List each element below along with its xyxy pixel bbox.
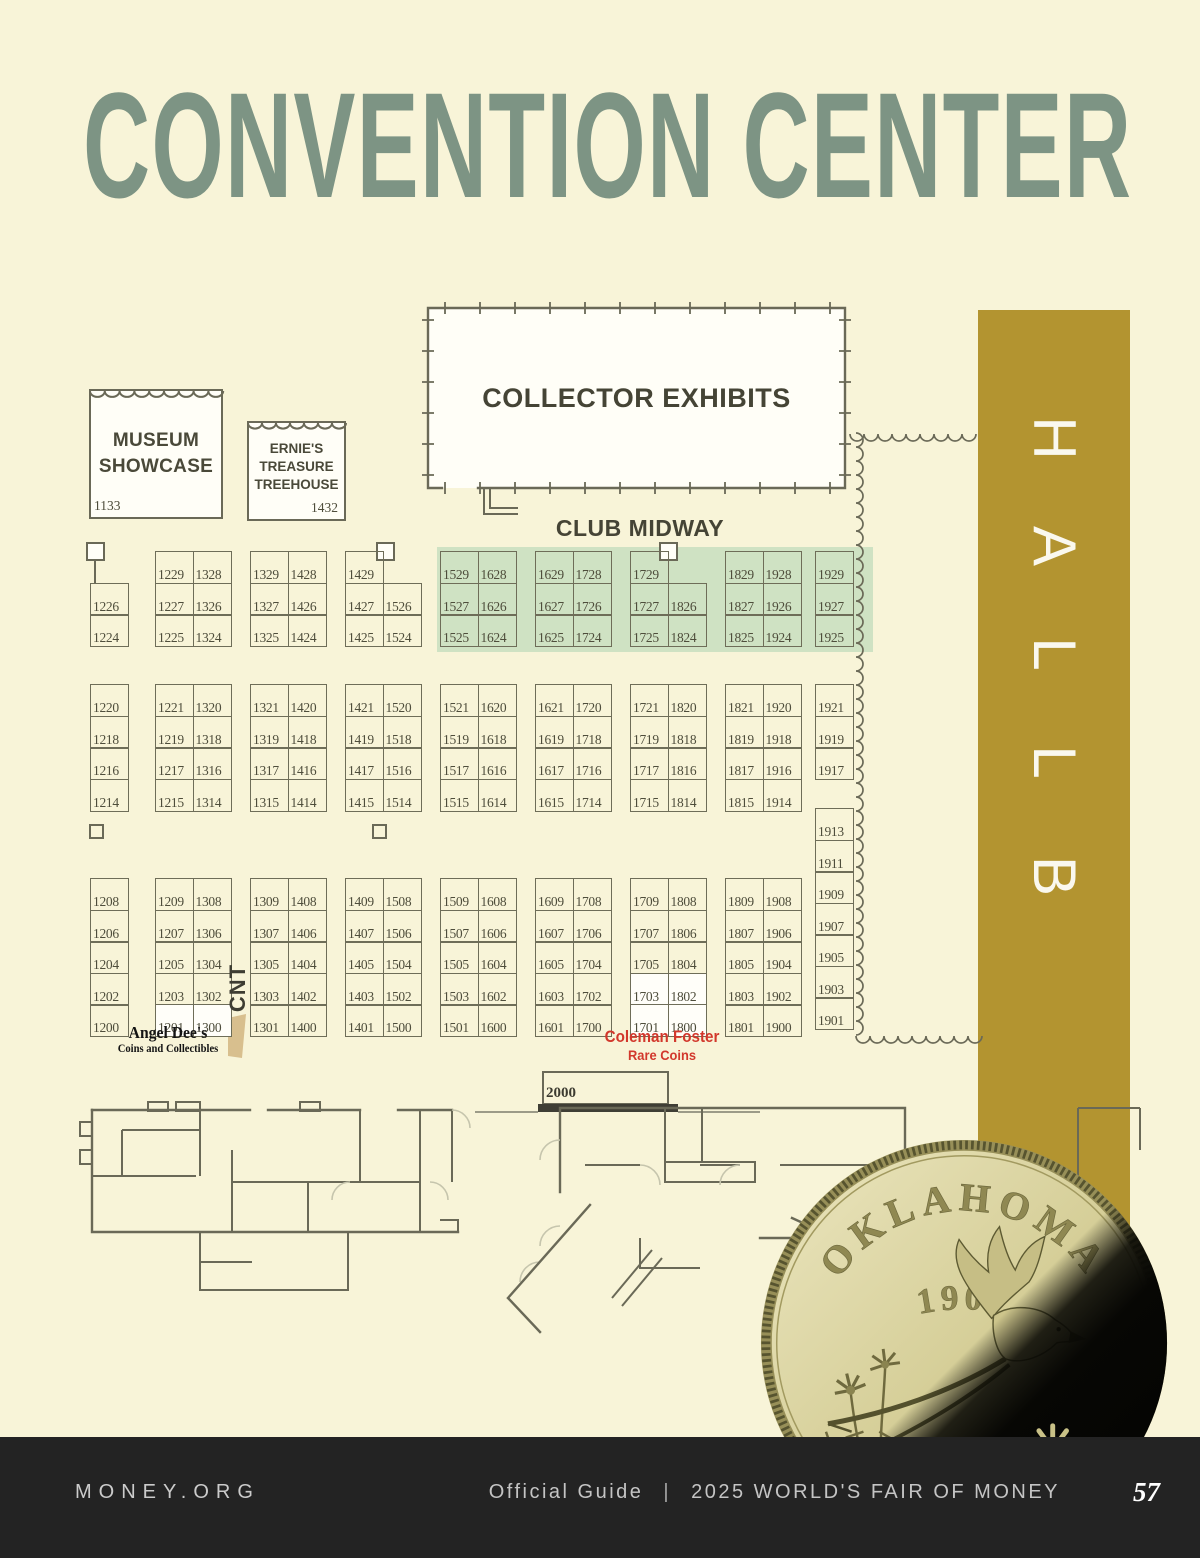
- booth-number: 1220: [93, 700, 119, 716]
- booth-1415: 1415: [345, 779, 384, 812]
- booth-number: 1408: [291, 894, 317, 910]
- page-title: CONVENTION CENTER: [83, 70, 1132, 220]
- booth-number: 1814: [671, 795, 697, 811]
- booth-number: 1917: [818, 763, 844, 779]
- booth-number: 1925: [818, 630, 844, 646]
- booth-number: 1325: [253, 630, 279, 646]
- booth-1702: 1702: [573, 973, 612, 1006]
- booth-1315: 1315: [250, 779, 289, 812]
- booth-1720: 1720: [573, 684, 612, 717]
- booth-number: 1707: [633, 926, 659, 942]
- booth-1603: 1603: [535, 973, 574, 1006]
- booth-1803: 1803: [725, 973, 764, 1006]
- booth-number: 1217: [158, 763, 184, 779]
- angel-dees-name: Angel Dee's: [104, 1024, 233, 1043]
- booth-number: 1215: [158, 795, 184, 811]
- booth-1508: 1508: [383, 878, 422, 911]
- booth-1808: 1808: [668, 878, 707, 911]
- booth-1214: 1214: [90, 779, 129, 812]
- booth-number: 1606: [481, 926, 507, 942]
- booth-number: 1419: [348, 732, 374, 748]
- booth-number: 1320: [196, 700, 222, 716]
- booth-1416: 1416: [288, 747, 327, 780]
- booth-1432-tag: 1432: [248, 500, 338, 516]
- booth-1829: 1829: [725, 551, 764, 584]
- booth-number: 1816: [671, 763, 697, 779]
- booth-number: 1204: [93, 957, 119, 973]
- booth-1820: 1820: [668, 684, 707, 717]
- booth-1913: 1913: [815, 808, 854, 841]
- museum-showcase-label: MUSEUM SHOWCASE: [90, 428, 222, 479]
- coleman-foster-name: Coleman Foster: [598, 1028, 727, 1047]
- booth-number: 1308: [196, 894, 222, 910]
- booth-1802: 1802: [668, 973, 707, 1006]
- booth-1721: 1721: [630, 684, 669, 717]
- booth-1205: 1205: [155, 941, 194, 974]
- booth-number: 1424: [291, 630, 317, 646]
- booth-number: 1203: [158, 989, 184, 1005]
- booth-number: 1718: [576, 732, 602, 748]
- booth-1921: 1921: [815, 684, 854, 717]
- booth-number: 1515: [443, 795, 469, 811]
- footer-guide-label: Official Guide: [489, 1481, 644, 1503]
- booth-1911: 1911: [815, 840, 854, 873]
- booth-1521: 1521: [440, 684, 479, 717]
- booth-1428: 1428: [288, 551, 327, 584]
- booth-number: 1821: [728, 700, 754, 716]
- booth-number: 1926: [766, 599, 792, 615]
- booth-1203: 1203: [155, 973, 194, 1006]
- booth-number: 1306: [196, 926, 222, 942]
- booth-1518: 1518: [383, 716, 422, 749]
- booth-number: 1909: [818, 887, 844, 903]
- booth-1306: 1306: [193, 910, 232, 943]
- booth-1724: 1724: [573, 614, 612, 647]
- booth-number: 1827: [728, 599, 754, 615]
- booth-1408: 1408: [288, 878, 327, 911]
- collector-exhibits-label: COLLECTOR EXHIBITS: [428, 383, 845, 414]
- booth-number: 1625: [538, 630, 564, 646]
- booth-1506: 1506: [383, 910, 422, 943]
- booth-1404: 1404: [288, 941, 327, 974]
- booth-number: 1714: [576, 795, 602, 811]
- booth-number: 1802: [671, 989, 697, 1005]
- booth-1215: 1215: [155, 779, 194, 812]
- booth-number: 1521: [443, 700, 469, 716]
- booth-1617: 1617: [535, 747, 574, 780]
- booth-number: 1804: [671, 957, 697, 973]
- booth-number: 1921: [818, 700, 844, 716]
- booth-1309: 1309: [250, 878, 289, 911]
- booth-number: 1503: [443, 989, 469, 1005]
- booth-number: 1509: [443, 894, 469, 910]
- booth-number: 1214: [93, 795, 119, 811]
- booth-1520: 1520: [383, 684, 422, 717]
- booth-number: 1803: [728, 989, 754, 1005]
- booth-1607: 1607: [535, 910, 574, 943]
- booth-number: 1720: [576, 700, 602, 716]
- booth-number: 1819: [728, 732, 754, 748]
- booth-number: 1219: [158, 732, 184, 748]
- booth-number: 1502: [386, 989, 412, 1005]
- booth-number: 1409: [348, 894, 374, 910]
- booth-1821: 1821: [725, 684, 764, 717]
- booth-1418: 1418: [288, 716, 327, 749]
- booth-number: 1427: [348, 599, 374, 615]
- booth-1517: 1517: [440, 747, 479, 780]
- booth-1905: 1905: [815, 934, 854, 967]
- booth-1704: 1704: [573, 941, 612, 974]
- booth-number: 1328: [196, 567, 222, 583]
- booth-number: 1907: [818, 919, 844, 935]
- booth-1324: 1324: [193, 614, 232, 647]
- booth-number: 1614: [481, 795, 507, 811]
- booth-number: 1604: [481, 957, 507, 973]
- booth-number: 1708: [576, 894, 602, 910]
- booth-1401: 1401: [345, 1004, 384, 1037]
- booth-number: 1628: [481, 567, 507, 583]
- booth-1429: 1429: [345, 551, 384, 584]
- booth-1628: 1628: [478, 551, 517, 584]
- booth-number: 1428: [291, 567, 317, 583]
- booth-1317: 1317: [250, 747, 289, 780]
- booth-number: 1207: [158, 926, 184, 942]
- booth-1703: 1703: [630, 973, 669, 1006]
- booth-1920: 1920: [763, 684, 802, 717]
- booth-1514: 1514: [383, 779, 422, 812]
- booth-1602: 1602: [478, 973, 517, 1006]
- booth-number: 1703: [633, 989, 659, 1005]
- page-footer: MONEY.ORG Official Guide|2025 WORLD'S FA…: [0, 1437, 1200, 1558]
- booth-number: 1807: [728, 926, 754, 942]
- booth-1804: 1804: [668, 941, 707, 974]
- booth-1816: 1816: [668, 747, 707, 780]
- booth-1500: 1500: [383, 1004, 422, 1037]
- booth-number: 1705: [633, 957, 659, 973]
- booth-number: 1900: [766, 1020, 792, 1036]
- angel-dees-subtitle: Coins and Collectibles: [104, 1043, 233, 1055]
- booth-number: 1202: [93, 989, 119, 1005]
- booth-number: 1519: [443, 732, 469, 748]
- booth-1206: 1206: [90, 910, 129, 943]
- booth-number: 1327: [253, 599, 279, 615]
- booth-1605: 1605: [535, 941, 574, 974]
- booth-number: 1727: [633, 599, 659, 615]
- booth-number: 1824: [671, 630, 697, 646]
- booth-1209: 1209: [155, 878, 194, 911]
- booth-1716: 1716: [573, 747, 612, 780]
- booth-1904: 1904: [763, 941, 802, 974]
- booth-2000-tag: 2000: [546, 1085, 576, 1102]
- booth-1502: 1502: [383, 973, 422, 1006]
- booth-number: 1928: [766, 567, 792, 583]
- booth-number: 1406: [291, 926, 317, 942]
- booth-1909: 1909: [815, 871, 854, 904]
- booth-1901: 1901: [815, 997, 854, 1030]
- booth-1426: 1426: [288, 583, 327, 616]
- booth-1925: 1925: [815, 614, 854, 647]
- booth-number: 1417: [348, 763, 374, 779]
- booth-number: 1725: [633, 630, 659, 646]
- booth-number: 1806: [671, 926, 697, 942]
- booth-1219: 1219: [155, 716, 194, 749]
- booth-1226: 1226: [90, 583, 129, 616]
- booth-number: 1506: [386, 926, 412, 942]
- guide-page: { "page": { "title": "CONVENTION CENTER"…: [0, 0, 1200, 1558]
- booth-1507: 1507: [440, 910, 479, 943]
- booth-number: 1728: [576, 567, 602, 583]
- booth-1907: 1907: [815, 903, 854, 936]
- booth-1625: 1625: [535, 614, 574, 647]
- booth-1208: 1208: [90, 878, 129, 911]
- booth-1207: 1207: [155, 910, 194, 943]
- booth-1727: 1727: [630, 583, 669, 616]
- booth-1709: 1709: [630, 878, 669, 911]
- booth-number: 1529: [443, 567, 469, 583]
- booth-1202: 1202: [90, 973, 129, 1006]
- booth-1420: 1420: [288, 684, 327, 717]
- booth-number: 1721: [633, 700, 659, 716]
- booth-number: 1908: [766, 894, 792, 910]
- booth-number: 1817: [728, 763, 754, 779]
- booth-number: 1704: [576, 957, 602, 973]
- booth-1621: 1621: [535, 684, 574, 717]
- booth-number: 1924: [766, 630, 792, 646]
- booth-number: 1829: [728, 567, 754, 583]
- cnt-label: CNT: [212, 962, 264, 1014]
- booth-1414: 1414: [288, 779, 327, 812]
- booth-number: 1420: [291, 700, 317, 716]
- booth-number: 1514: [386, 795, 412, 811]
- footer-guide-text: Official Guide|2025 WORLD'S FAIR OF MONE…: [489, 1481, 1060, 1504]
- booth-1826: 1826: [668, 583, 707, 616]
- booth-number: 1809: [728, 894, 754, 910]
- booth-1403: 1403: [345, 973, 384, 1006]
- booth-number: 1326: [196, 599, 222, 615]
- booth-number: 1415: [348, 795, 374, 811]
- booth-1827: 1827: [725, 583, 764, 616]
- footer-page-number: 57: [1133, 1477, 1160, 1508]
- booth-number: 1500: [386, 1020, 412, 1036]
- booth-1715: 1715: [630, 779, 669, 812]
- booth-1600: 1600: [478, 1004, 517, 1037]
- booth-1809: 1809: [725, 878, 764, 911]
- booth-number: 1309: [253, 894, 279, 910]
- booth-number: 1400: [291, 1020, 317, 1036]
- booth-1624: 1624: [478, 614, 517, 647]
- booth-number: 1216: [93, 763, 119, 779]
- booth-number: 1716: [576, 763, 602, 779]
- booth-number: 1601: [538, 1020, 564, 1036]
- booth-number: 1911: [818, 856, 843, 872]
- booth-1325: 1325: [250, 614, 289, 647]
- booth-number: 1600: [481, 1020, 507, 1036]
- booth-1319: 1319: [250, 716, 289, 749]
- booth-number: 1617: [538, 763, 564, 779]
- booth-1725: 1725: [630, 614, 669, 647]
- booth-1224: 1224: [90, 614, 129, 647]
- booth-number: 1401: [348, 1020, 374, 1036]
- booth-number: 1918: [766, 732, 792, 748]
- booth-number: 1218: [93, 732, 119, 748]
- booth-1806: 1806: [668, 910, 707, 943]
- booth-number: 1608: [481, 894, 507, 910]
- booth-1427: 1427: [345, 583, 384, 616]
- booth-1516: 1516: [383, 747, 422, 780]
- booth-number: 1724: [576, 630, 602, 646]
- booth-number: 1520: [386, 700, 412, 716]
- booth-number: 1914: [766, 795, 792, 811]
- booth-1505: 1505: [440, 941, 479, 974]
- booth-1307: 1307: [250, 910, 289, 943]
- booth-number: 1618: [481, 732, 507, 748]
- booth-1906: 1906: [763, 910, 802, 943]
- booth-1819: 1819: [725, 716, 764, 749]
- booth-number: 1527: [443, 599, 469, 615]
- booth-number: 1517: [443, 763, 469, 779]
- booth-number: 1801: [728, 1020, 754, 1036]
- booth-number: 1317: [253, 763, 279, 779]
- booth-1718: 1718: [573, 716, 612, 749]
- booth-1719: 1719: [630, 716, 669, 749]
- booth-number: 1602: [481, 989, 507, 1005]
- booth-number: 1906: [766, 926, 792, 942]
- booth-1619: 1619: [535, 716, 574, 749]
- booth-number: 1314: [196, 795, 222, 811]
- booth-number: 1227: [158, 599, 184, 615]
- booth-number: 1425: [348, 630, 374, 646]
- booth-number: 1508: [386, 894, 412, 910]
- booth-1929: 1929: [815, 551, 854, 584]
- booth-number: 1229: [158, 567, 184, 583]
- booth-1515: 1515: [440, 779, 479, 812]
- booth-1616: 1616: [478, 747, 517, 780]
- booth-1817: 1817: [725, 747, 764, 780]
- booth-1328: 1328: [193, 551, 232, 584]
- booth-1526: 1526: [383, 583, 422, 616]
- booth-1329: 1329: [250, 551, 289, 584]
- booth-number: 1815: [728, 795, 754, 811]
- booth-1321: 1321: [250, 684, 289, 717]
- booth-1918: 1918: [763, 716, 802, 749]
- booth-number: 1609: [538, 894, 564, 910]
- booth-number: 1403: [348, 989, 374, 1005]
- booth-number: 1616: [481, 763, 507, 779]
- booth-number: 1615: [538, 795, 564, 811]
- booth-number: 1318: [196, 732, 222, 748]
- booth-1204: 1204: [90, 941, 129, 974]
- booth-1620: 1620: [478, 684, 517, 717]
- booth-1604: 1604: [478, 941, 517, 974]
- booth-number: 1603: [538, 989, 564, 1005]
- booth-number: 1903: [818, 982, 844, 998]
- booth-number: 1208: [93, 894, 119, 910]
- coleman-foster-label: Coleman Foster Rare Coins: [598, 1028, 727, 1063]
- booth-number: 1927: [818, 599, 844, 615]
- booth-1425: 1425: [345, 614, 384, 647]
- booth-1402: 1402: [288, 973, 327, 1006]
- booth-number: 1402: [291, 989, 317, 1005]
- booth-number: 1324: [196, 630, 222, 646]
- booth-number: 1726: [576, 599, 602, 615]
- booth-number: 1719: [633, 732, 659, 748]
- booth-number: 1820: [671, 700, 697, 716]
- booth-number: 1702: [576, 989, 602, 1005]
- booth-1221: 1221: [155, 684, 194, 717]
- booth-1419: 1419: [345, 716, 384, 749]
- booth-number: 1315: [253, 795, 279, 811]
- booth-1726: 1726: [573, 583, 612, 616]
- booth-number: 1221: [158, 700, 184, 716]
- booth-1400: 1400: [288, 1004, 327, 1037]
- booth-number: 1319: [253, 732, 279, 748]
- booth-number: 1429: [348, 567, 374, 583]
- booth-1327: 1327: [250, 583, 289, 616]
- coleman-foster-subtitle: Rare Coins: [598, 1047, 727, 1063]
- booth-1917: 1917: [815, 747, 854, 780]
- footer-event-label: 2025 WORLD'S FAIR OF MONEY: [691, 1481, 1060, 1503]
- booth-1407: 1407: [345, 910, 384, 943]
- booth-1705: 1705: [630, 941, 669, 974]
- booth-1409: 1409: [345, 878, 384, 911]
- booth-1914: 1914: [763, 779, 802, 812]
- booth-1801: 1801: [725, 1004, 764, 1037]
- booth-1316: 1316: [193, 747, 232, 780]
- footer-separator: |: [663, 1481, 671, 1503]
- booth-number: 1709: [633, 894, 659, 910]
- booth-number: 1929: [818, 567, 844, 583]
- booth-1608: 1608: [478, 878, 517, 911]
- booth-number: 1607: [538, 926, 564, 942]
- booth-number: 1717: [633, 763, 659, 779]
- booth-number: 1808: [671, 894, 697, 910]
- booth-1614: 1614: [478, 779, 517, 812]
- club-midway-label: CLUB MIDWAY: [430, 515, 850, 542]
- booth-number: 1902: [766, 989, 792, 1005]
- booth-1217: 1217: [155, 747, 194, 780]
- booth-1902: 1902: [763, 973, 802, 1006]
- booth-number: 1619: [538, 732, 564, 748]
- booth-number: 1501: [443, 1020, 469, 1036]
- booth-1503: 1503: [440, 973, 479, 1006]
- booth-1519: 1519: [440, 716, 479, 749]
- booth-1626: 1626: [478, 583, 517, 616]
- booth-1814: 1814: [668, 779, 707, 812]
- booth-number: 1919: [818, 732, 844, 748]
- booth-1717: 1717: [630, 747, 669, 780]
- booth-number: 1205: [158, 957, 184, 973]
- booth-number: 1321: [253, 700, 279, 716]
- booth-number: 1225: [158, 630, 184, 646]
- booth-1318: 1318: [193, 716, 232, 749]
- booth-number: 1407: [348, 926, 374, 942]
- booth-number: 1729: [633, 567, 659, 583]
- booth-1601: 1601: [535, 1004, 574, 1037]
- booth-number: 1505: [443, 957, 469, 973]
- booth-1421: 1421: [345, 684, 384, 717]
- booth-number: 1224: [93, 630, 119, 646]
- booth-number: 1316: [196, 763, 222, 779]
- booth-number: 1209: [158, 894, 184, 910]
- booth-number: 1715: [633, 795, 659, 811]
- booth-number: 1620: [481, 700, 507, 716]
- booth-1225: 1225: [155, 614, 194, 647]
- booth-number: 1301: [253, 1020, 279, 1036]
- booth-number: 1626: [481, 599, 507, 615]
- booth-number: 1916: [766, 763, 792, 779]
- booth-number: 1421: [348, 700, 374, 716]
- booth-number: 1524: [386, 630, 412, 646]
